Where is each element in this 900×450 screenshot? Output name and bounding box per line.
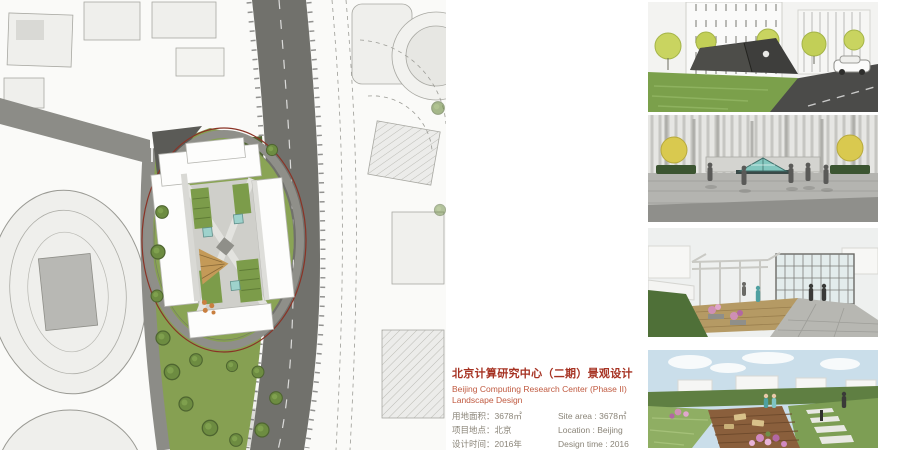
garden-render	[648, 350, 878, 448]
design-time-en: Design time : 2016	[558, 438, 652, 450]
presentation-board: 北京计算研究中心（二期）景观设计 Beijing Computing Resea…	[0, 0, 900, 450]
hedge-right	[830, 165, 870, 174]
entrance-render	[648, 2, 878, 112]
site-area-cn: 用地面积：3678㎡	[452, 410, 558, 424]
terrace-render	[648, 228, 878, 337]
detail-row-location: 项目地点：北京 Location : Beijing	[452, 424, 652, 438]
design-time-cn: 设计时间：2016年	[452, 438, 558, 450]
project-info: 北京计算研究中心（二期）景观设计 Beijing Computing Resea…	[452, 367, 652, 450]
site-plan	[0, 0, 446, 450]
plaza-render	[648, 115, 878, 222]
tree-left	[661, 137, 687, 163]
bollard	[820, 410, 823, 421]
render-column	[648, 0, 878, 450]
detail-row-design-time: 设计时间：2016年 Design time : 2016	[452, 438, 652, 450]
site-area-en: Site area : 3678㎡	[558, 410, 652, 424]
glass-pavilion	[772, 254, 858, 304]
hedge-left	[656, 165, 696, 174]
tree-right	[837, 135, 863, 161]
site-plan-drawing	[0, 0, 446, 450]
detail-row-site-area: 用地面积：3678㎡ Site area : 3678㎡	[452, 410, 652, 424]
location-en: Location : Beijing	[558, 424, 652, 438]
project-details: 用地面积：3678㎡ Site area : 3678㎡ 项目地点：北京 Loc…	[452, 410, 652, 450]
location-cn: 项目地点：北京	[452, 424, 558, 438]
project-title-en: Beijing Computing Research Center (Phase…	[452, 384, 652, 406]
project-title-cn: 北京计算研究中心（二期）景观设计	[452, 367, 652, 381]
